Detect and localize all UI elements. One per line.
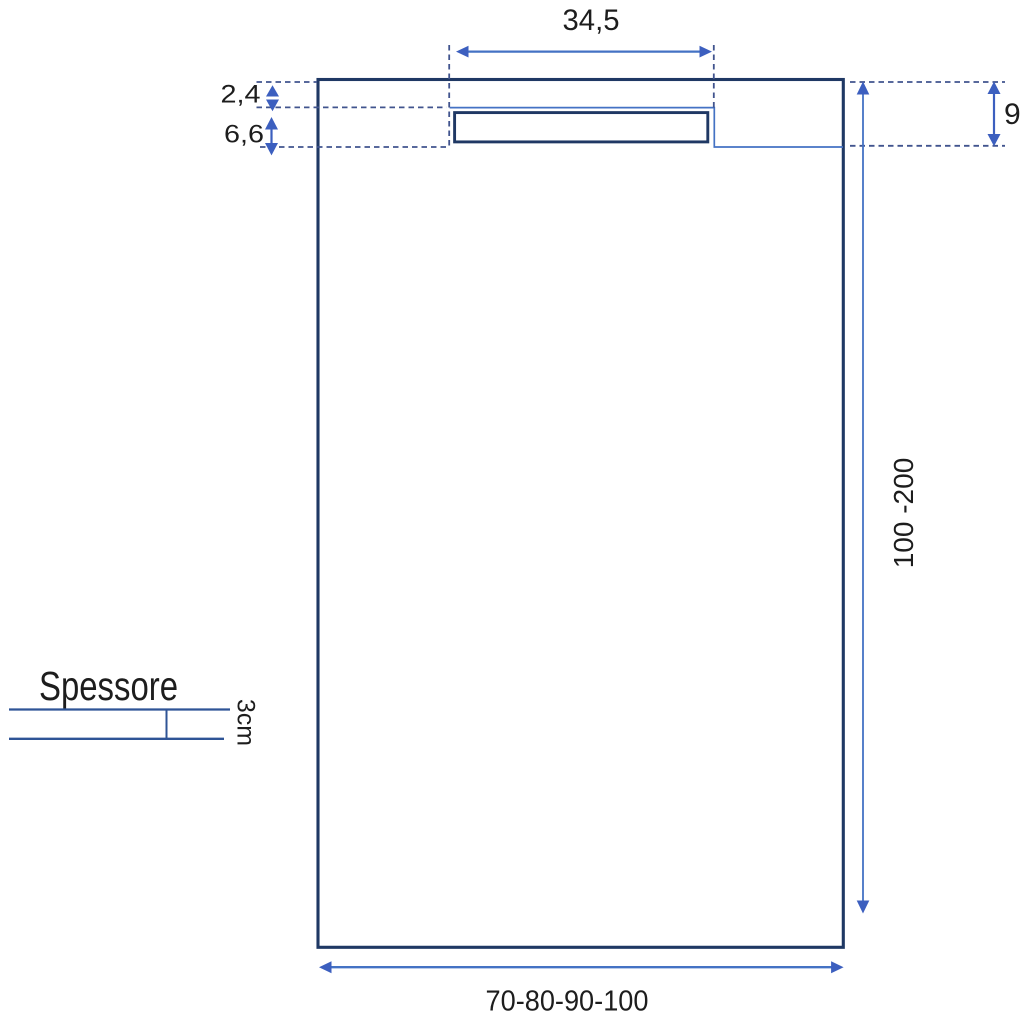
svg-text:3cm: 3cm (232, 699, 260, 746)
svg-text:70-80-90-100: 70-80-90-100 (486, 986, 649, 1018)
svg-text:6,6: 6,6 (224, 121, 264, 149)
svg-text:9: 9 (1004, 98, 1021, 131)
svg-text:Spessore: Spessore (39, 663, 178, 709)
svg-text:2,4: 2,4 (221, 81, 261, 109)
svg-text:100 -200: 100 -200 (888, 458, 919, 569)
svg-text:34,5: 34,5 (563, 4, 620, 37)
